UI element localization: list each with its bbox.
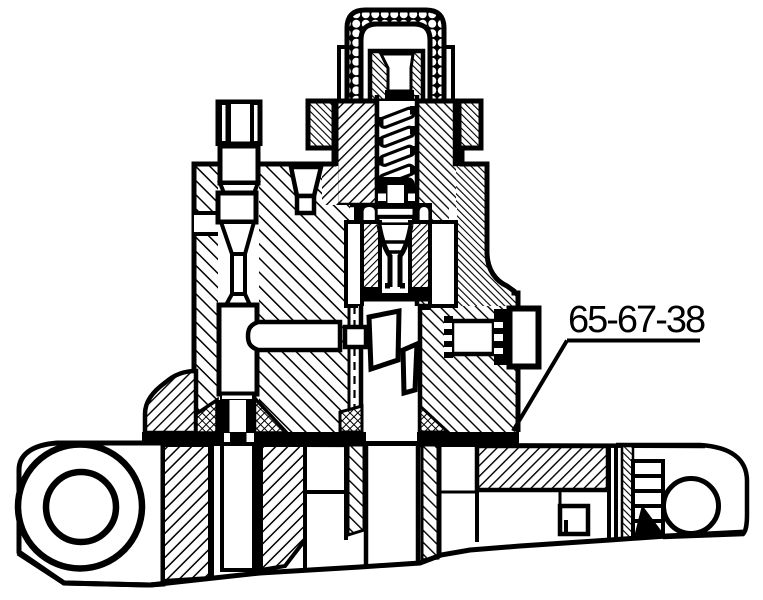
svg-text:65-67-38: 65-67-38 (568, 299, 705, 341)
